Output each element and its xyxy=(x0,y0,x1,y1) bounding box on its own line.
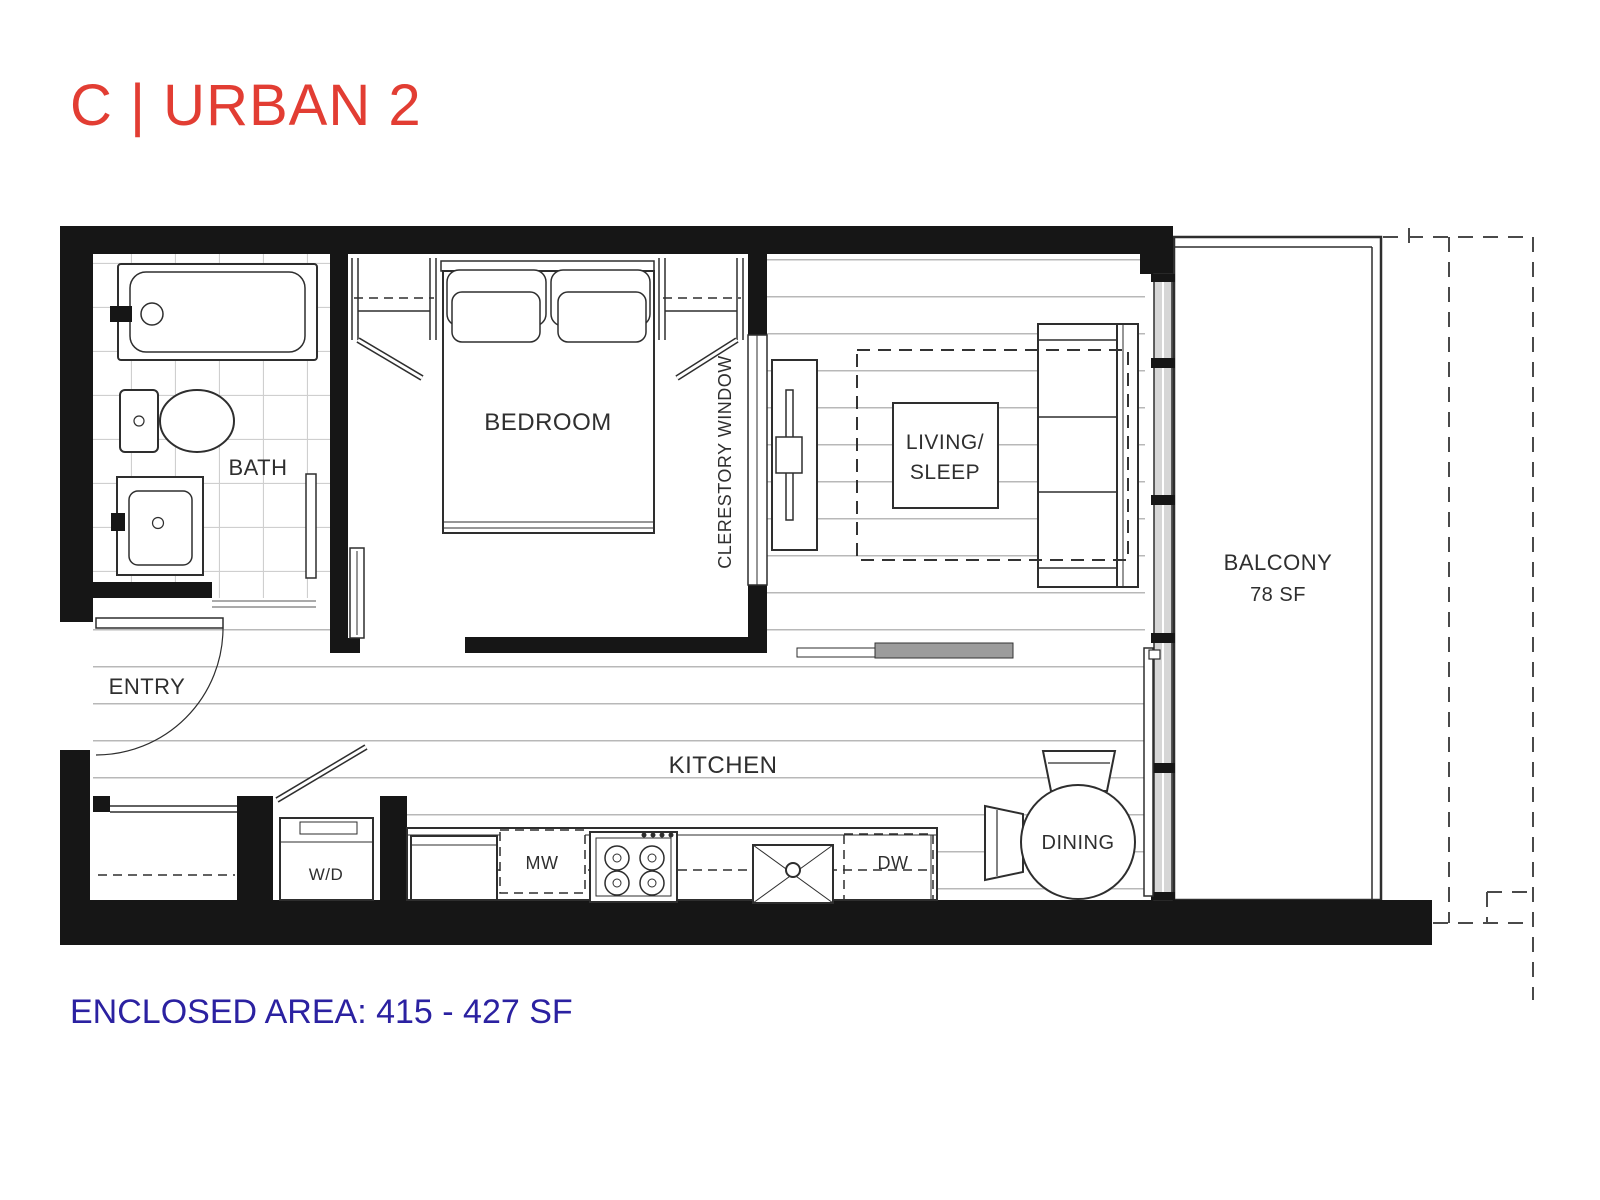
living-label-line1: LIVING/ xyxy=(906,431,984,454)
bedroom-label: BEDROOM xyxy=(484,409,612,436)
wall-bedroom-west-foot xyxy=(348,638,360,653)
wall-closet-pillar-2 xyxy=(380,796,407,900)
sink-drain-icon xyxy=(786,863,800,877)
mullion-cap-top xyxy=(1151,274,1175,282)
pillow-right-front xyxy=(558,292,646,342)
balcony-label: BALCONY xyxy=(1224,550,1333,575)
bedroom-doorway xyxy=(356,637,466,653)
entry-door-leaf xyxy=(96,618,223,628)
credenza xyxy=(875,643,1013,658)
window-wall xyxy=(1144,274,1175,900)
washer-controls xyxy=(300,822,357,834)
pillow-left-front xyxy=(452,292,540,342)
living-label-line2: SLEEP xyxy=(910,461,980,484)
wall-bottom xyxy=(60,900,1432,945)
enclosed-area-label: ENCLOSED AREA: 415 - 427 SF xyxy=(70,993,573,1032)
wall-corner-right xyxy=(1140,226,1173,274)
mullion-cap-bottom xyxy=(1151,892,1175,900)
microwave-label: MW xyxy=(526,853,559,873)
wall-left-upper xyxy=(60,226,93,622)
fridge xyxy=(411,836,497,900)
entry-label: ENTRY xyxy=(109,674,186,699)
vanity-drain-icon xyxy=(153,518,164,529)
dining-chair-left xyxy=(985,806,1023,880)
stove-knob-4 xyxy=(669,833,674,838)
projection-dashed-lines xyxy=(1383,228,1533,1000)
wall-left-lower xyxy=(60,750,90,902)
tv-shelf xyxy=(776,437,802,473)
toilet-bowl xyxy=(160,390,234,452)
mullion-2 xyxy=(1151,495,1175,505)
plan-title: C | URBAN 2 xyxy=(70,72,422,139)
stove-knob-2 xyxy=(651,833,656,838)
tub-faucet-icon xyxy=(141,303,163,325)
wall-bath-south xyxy=(93,582,212,598)
balcony: BALCONY 78 SF xyxy=(1174,237,1381,900)
clerestory-label: CLERESTORY WINDOW xyxy=(715,355,735,569)
dishwasher-label: DW xyxy=(878,853,909,873)
kitchen-label: KITCHEN xyxy=(669,752,778,779)
stove-knob-3 xyxy=(660,833,665,838)
wall-clerestory-upper-stub xyxy=(748,254,767,335)
tub-spout xyxy=(110,306,132,322)
stove-knob-1 xyxy=(642,833,647,838)
mullion-4 xyxy=(1151,763,1175,773)
mullion-1 xyxy=(1151,358,1175,368)
wall-clerestory-lower xyxy=(748,585,767,653)
vanity-faucet xyxy=(111,513,125,531)
wall-top xyxy=(60,226,1173,254)
balcony-slider-leaf xyxy=(1144,648,1153,896)
wall-bedroom-south xyxy=(465,637,767,653)
wall-closet-pillar-1 xyxy=(237,796,273,900)
bath-label: BATH xyxy=(228,455,287,480)
toilet-flush-icon xyxy=(134,416,144,426)
dining-label: DINING xyxy=(1042,832,1115,854)
wall-closet-stub xyxy=(93,796,110,812)
balcony-area-label: 78 SF xyxy=(1250,584,1306,606)
wall-bedroom-west xyxy=(330,254,348,653)
washer-dryer-label: W/D xyxy=(309,865,344,884)
floorplan-page: C | URBAN 2 BALCONY 78 SF xyxy=(0,0,1600,1200)
living-label-box xyxy=(893,403,998,508)
slider-handle xyxy=(1149,650,1160,659)
bath-pocket-door xyxy=(306,474,316,578)
credenza-side xyxy=(797,648,875,657)
mullion-3 xyxy=(1151,633,1175,643)
